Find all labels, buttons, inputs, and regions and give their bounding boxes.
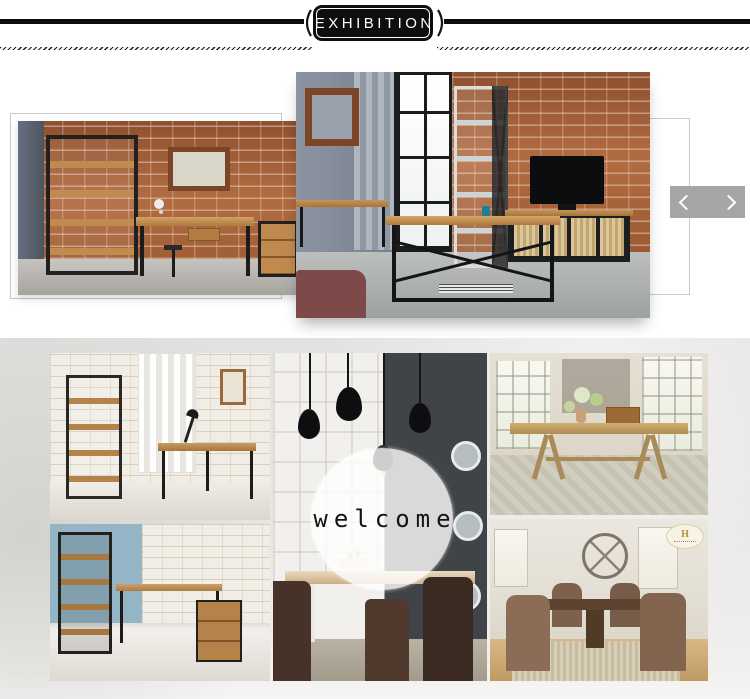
dotted-divider-right (437, 47, 750, 50)
carousel-photo-living-room[interactable] (296, 72, 650, 318)
bookshelf (46, 135, 138, 275)
desk-lamp (154, 199, 164, 209)
console-leg (382, 207, 385, 247)
cabinet-door (571, 218, 596, 256)
patterned-rug (490, 455, 708, 515)
lamp-cord (383, 353, 385, 445)
desk-leg (162, 451, 165, 499)
console-leg (300, 207, 303, 247)
gallery-photo-farmhouse-table[interactable] (490, 353, 708, 515)
table-leg (311, 584, 315, 642)
bookshelf (58, 532, 112, 654)
gallery-photo-white-brick-office[interactable] (50, 353, 270, 520)
lamp-cord (347, 353, 349, 387)
bookshelf (66, 375, 122, 499)
watermark-text-line (674, 541, 696, 544)
gallery-photo-classic-dining[interactable]: H (490, 519, 708, 681)
flowers (590, 393, 603, 406)
world-map-frame (168, 147, 230, 191)
file-cabinet (196, 600, 242, 662)
television (530, 156, 604, 204)
dining-chair (640, 593, 686, 671)
flowers (574, 387, 590, 403)
trestle-table-top (510, 423, 688, 434)
carousel-photo-study[interactable] (18, 121, 302, 295)
desk-leg (246, 226, 250, 276)
exhibition-page: EXHIBITION (0, 0, 750, 699)
desk-leg (250, 451, 253, 499)
chevron-left-icon[interactable] (679, 194, 695, 210)
flowers (564, 401, 575, 412)
dotted-divider-left (0, 47, 313, 50)
desk-top (158, 443, 256, 451)
wall-art (220, 369, 246, 405)
table-pedestal (586, 610, 604, 648)
magazine-stack (439, 284, 513, 293)
wooden-box (606, 407, 640, 424)
porthole-mirror (453, 511, 483, 541)
gallery-photo-blue-wall-office[interactable] (50, 524, 270, 681)
pendant-lamp (298, 409, 320, 439)
window (494, 529, 528, 587)
grid-window (496, 361, 550, 449)
pendant-lamp (409, 403, 431, 433)
drawer-cabinet (258, 221, 298, 277)
pendant-lamp (336, 387, 362, 421)
coffee-table-top (386, 216, 560, 225)
exhibition-banner: EXHIBITION (313, 5, 433, 41)
console-table (296, 200, 388, 207)
desk-top (136, 217, 254, 226)
chevron-right-icon[interactable] (721, 194, 737, 210)
porthole-mirror (451, 441, 481, 471)
dining-chair (506, 595, 550, 671)
trestle-beam (546, 457, 650, 461)
wood-mirror (305, 88, 359, 146)
cabinet-door (600, 218, 625, 256)
lamp-cord (309, 353, 311, 409)
header-rule-right (444, 19, 750, 24)
stool (164, 245, 182, 277)
desk-leg (120, 591, 123, 643)
sofa-corner (296, 270, 366, 318)
header-rule-left (0, 19, 304, 24)
desk-top (116, 584, 222, 591)
desk-drawer (188, 228, 220, 241)
desk-leg (140, 226, 144, 276)
carousel-arrows[interactable] (670, 186, 745, 218)
welcome-badge: welcome (311, 448, 453, 590)
banner-right-ornament (436, 9, 448, 37)
watermark-letter: H (681, 530, 689, 540)
welcome-label: welcome (307, 505, 456, 533)
dining-chair (423, 577, 473, 681)
desk-leg (206, 451, 209, 491)
dining-chair (273, 581, 311, 681)
brand-watermark: H (666, 524, 704, 549)
vase (576, 409, 586, 423)
wagon-wheel-decor (582, 533, 628, 579)
lamp-cord (419, 353, 421, 403)
section-title: EXHIBITION (311, 15, 435, 32)
coffee-table (392, 224, 554, 302)
dining-chair (365, 599, 409, 681)
